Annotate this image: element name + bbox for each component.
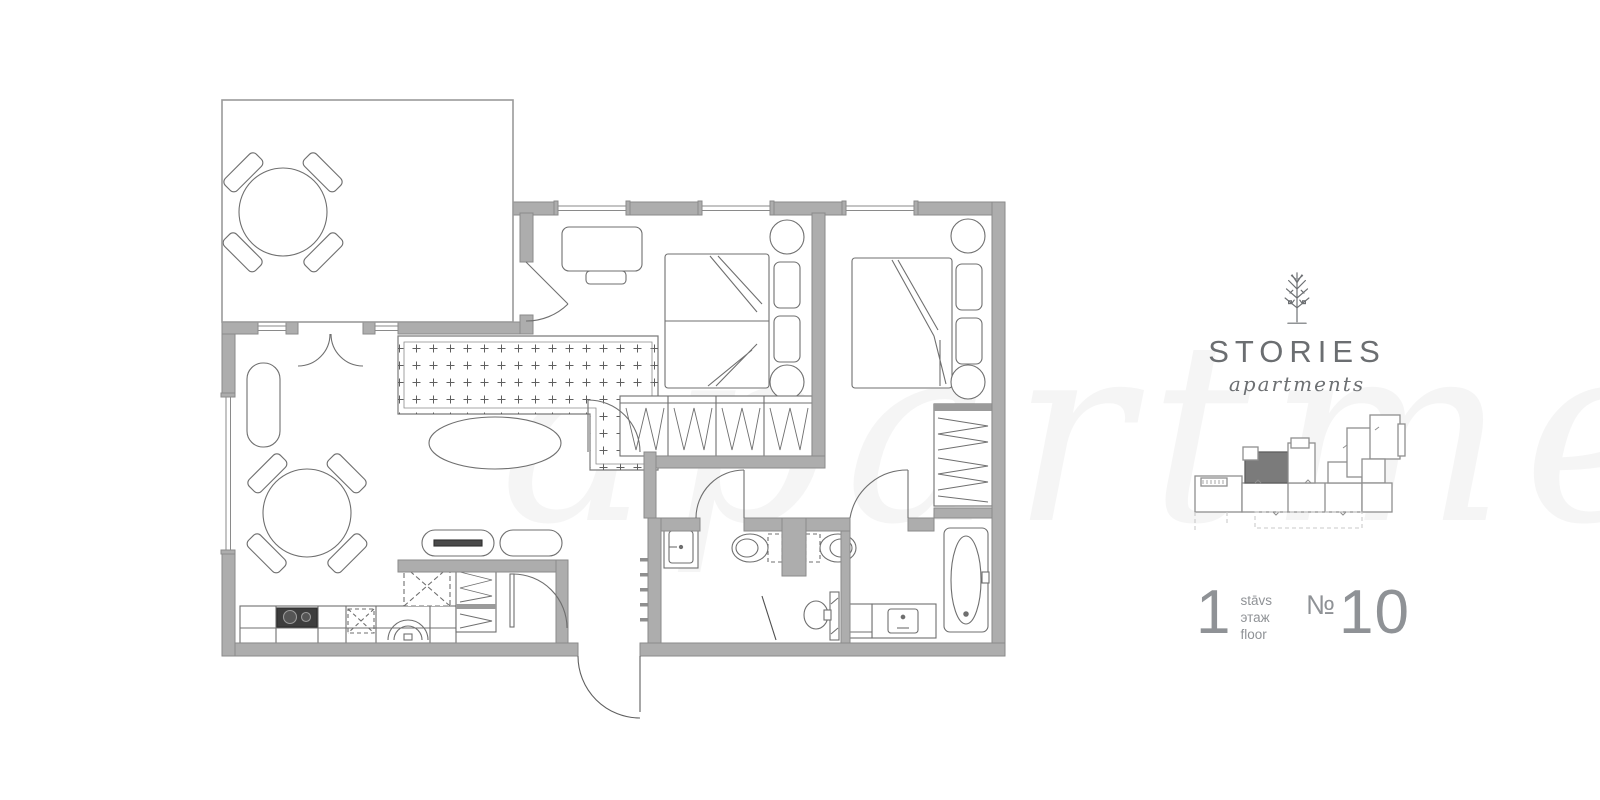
dining-table — [245, 452, 369, 575]
floor-label-ru: этаж — [1240, 610, 1269, 625]
floor-number: 1 — [1196, 582, 1230, 644]
side-table — [951, 219, 985, 253]
number-sign: № — [1306, 590, 1335, 621]
washbasin — [664, 526, 698, 568]
bathtub — [944, 528, 989, 632]
apartment-number: 10 — [1339, 582, 1410, 644]
hall-wardrobe — [456, 566, 496, 632]
page: apartments — [0, 0, 1600, 800]
desk-chair — [586, 271, 626, 284]
wardrobe-1 — [620, 396, 812, 456]
door-leaf — [762, 596, 776, 640]
building-footprint-map — [1165, 400, 1415, 538]
floor-label-en: floor — [1240, 627, 1266, 642]
toilet — [804, 592, 839, 640]
vanity-sink — [872, 604, 936, 638]
nightstand — [774, 262, 800, 308]
side-table — [951, 365, 985, 399]
bench-radiator — [434, 540, 482, 546]
nightstand — [774, 316, 800, 362]
brand-tagline: apartments — [1150, 372, 1444, 396]
brand-block: STORIES apartments — [1150, 268, 1444, 396]
plant — [247, 363, 280, 447]
bench — [422, 530, 562, 556]
floor-label-lv: stāvs — [1240, 593, 1272, 608]
coffee-table — [429, 417, 561, 469]
side-table — [770, 365, 804, 399]
brand-name: STORIES — [1150, 334, 1444, 370]
tree-icon — [1276, 268, 1318, 328]
terrace-dining-table — [221, 151, 345, 274]
floor-labels: stāvs этаж floor — [1240, 592, 1272, 643]
kitchen-counter — [240, 606, 456, 643]
side-table — [770, 220, 804, 254]
french-doors — [298, 334, 363, 366]
double-bed-2 — [852, 219, 985, 399]
nightstand — [956, 264, 982, 310]
nightstand — [956, 318, 982, 364]
entrance-door — [578, 656, 640, 718]
desk — [562, 227, 642, 284]
floor-card: 1 stāvs этаж floor №10 — [1196, 582, 1410, 652]
wardrobe-2 — [934, 404, 992, 506]
